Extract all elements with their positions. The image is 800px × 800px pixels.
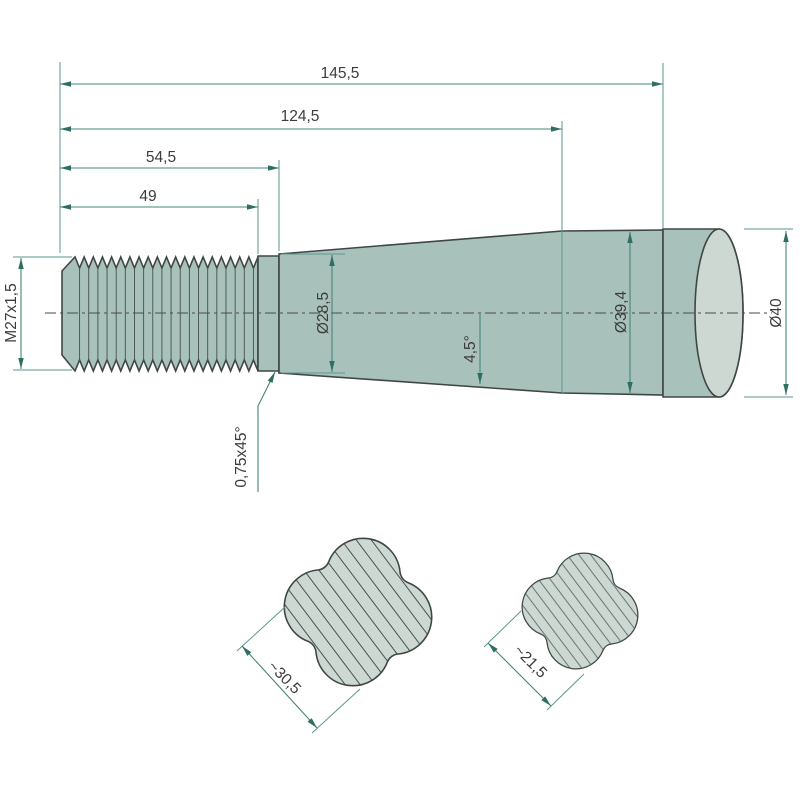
chamfer-callout-leader — [258, 372, 275, 492]
dim-thread-spec-label: M27x1,5 — [3, 283, 20, 342]
dim-thread-length-label: 49 — [139, 188, 156, 205]
dim-thread-section-label: 54,5 — [146, 149, 176, 166]
extension-line-cs-small-1 — [484, 611, 521, 647]
dim-cylinder-diameter-label: Ø39,4 — [613, 291, 630, 334]
part-side-view — [45, 229, 772, 397]
extension-line-cs-small-2 — [547, 674, 584, 710]
drawing-canvas: 145,5 124,5 54,5 49 M27x1,5 Ø28,5 Ø39,4 … — [0, 0, 800, 800]
dim-cross-section-small-label: ~21,5 — [510, 642, 550, 682]
dim-length-to-cylinder-label: 124,5 — [281, 108, 320, 125]
extension-line-cs-large-1 — [237, 607, 285, 651]
cross-section-large — [274, 528, 441, 695]
technical-drawing: 145,5 124,5 54,5 49 M27x1,5 Ø28,5 Ø39,4 … — [0, 0, 800, 800]
dim-end-diameter-label: Ø40 — [768, 298, 785, 328]
threaded-section — [62, 257, 258, 371]
dim-taper-start-diameter-label: Ø28,5 — [315, 292, 332, 334]
cross-sections: ~30,5 ~21,5 — [237, 528, 646, 733]
dim-cross-section-large-line — [242, 646, 317, 728]
extension-line-cs-large-2 — [312, 689, 360, 733]
dim-taper-angle-label: 4,5° — [462, 335, 479, 363]
dim-total-length-label: 145,5 — [321, 65, 360, 82]
chamfer-callout-label: 0,75x45° — [233, 426, 250, 487]
